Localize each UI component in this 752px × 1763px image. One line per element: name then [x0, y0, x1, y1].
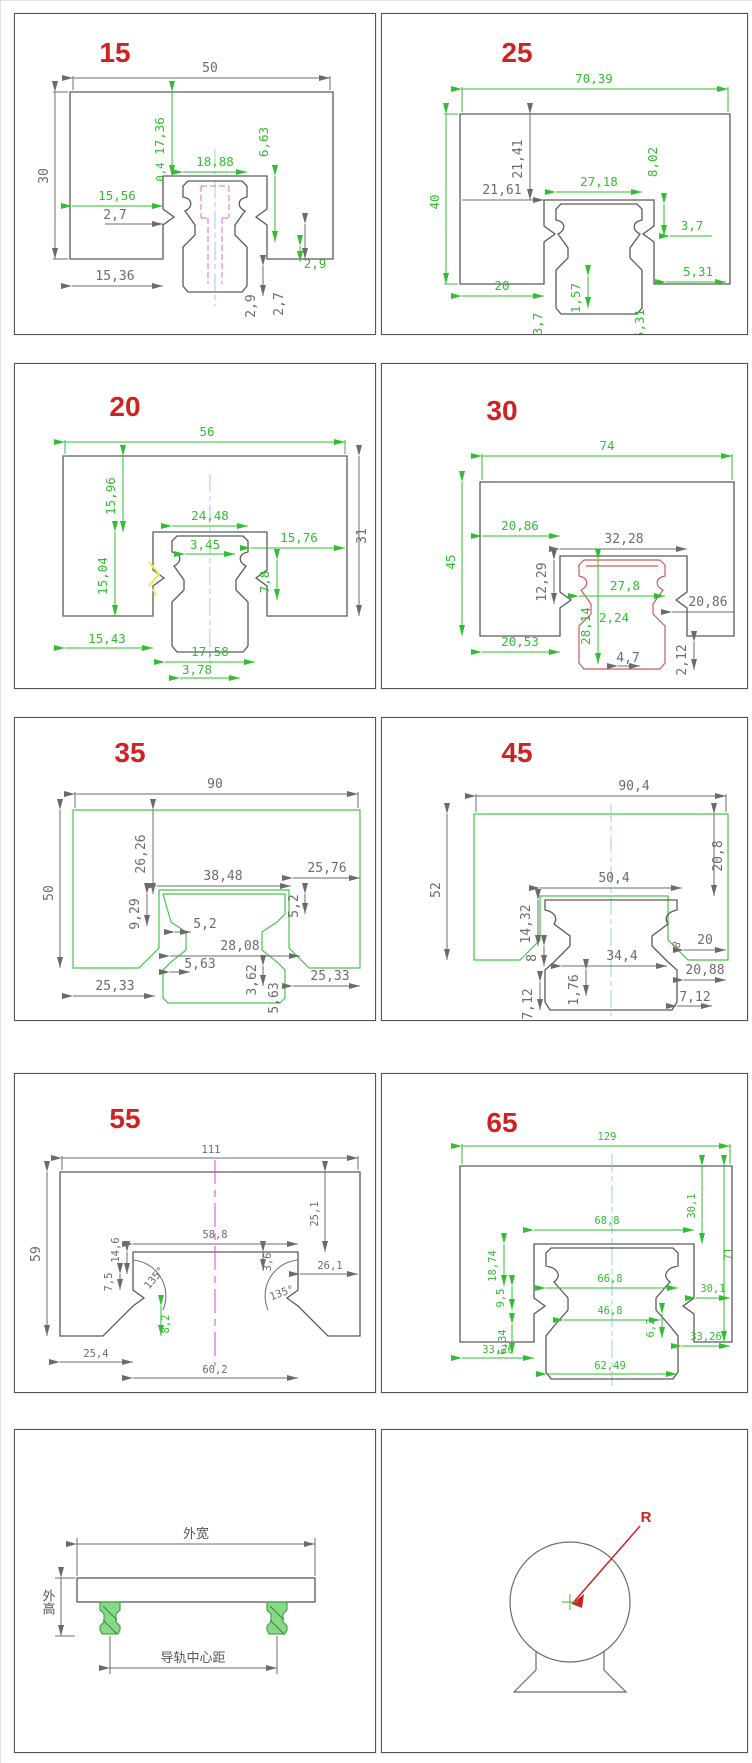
panel-label: 45 [501, 737, 532, 768]
dim-label: 45 [443, 554, 458, 569]
dim-label: 15,96 [103, 477, 118, 515]
dim-label: 28,08 [220, 939, 259, 954]
dim-label: 129 [598, 1131, 617, 1143]
dim-label: 135° [142, 1265, 167, 1292]
dim-label: 12,29 [535, 562, 550, 601]
dim-label: 3,7 [681, 218, 704, 233]
dim-label: 52 [429, 882, 444, 898]
dim-label: 40 [427, 194, 442, 209]
dim-label: 26,26 [134, 834, 149, 873]
dim-label: 17,58 [191, 644, 229, 659]
panel-label: 25 [501, 37, 532, 68]
dim-label: 20 [494, 278, 509, 293]
dim-label: 3,62 [245, 964, 260, 995]
panel-radius: R [381, 1429, 748, 1753]
dim-label: 27,8 [610, 578, 640, 593]
dim-label: 3,45 [190, 537, 220, 552]
dim-label: 20,86 [688, 595, 727, 610]
dim-label: 5,31 [632, 309, 647, 334]
panel-15: 15 50 30 17,36 0,4 18,88 6,63 15,56 2,7 … [14, 13, 376, 335]
dim-label: 5,2 [193, 917, 216, 932]
outer-width-label: 外宽 [183, 1526, 209, 1542]
panel-65: 65 129 30,1 71 68,8 18,74 9,5 66,8 46,8 … [381, 1073, 748, 1393]
dimension-labels: 74 45 20,86 32,28 12,29 27,8 28,14 2,24 … [443, 438, 728, 676]
rail-left [100, 1602, 120, 1634]
dim-label: 4,7 [616, 651, 639, 666]
dimension-lines [447, 794, 726, 1010]
dim-label: 5,31 [683, 264, 713, 279]
dim-label: 25,1 [309, 1201, 321, 1226]
dim-label: 68,8 [594, 1215, 619, 1227]
dim-label: 25,33 [95, 979, 134, 994]
dimension-lines [47, 1156, 358, 1378]
dim-label: 20,88 [685, 963, 724, 978]
dim-label: 25,33 [310, 969, 349, 984]
dim-label: 70,39 [575, 71, 613, 86]
carriage-block-outline [60, 1172, 360, 1336]
dim-label: 6,63 [256, 127, 271, 157]
dim-label: 66,8 [597, 1273, 622, 1285]
dim-label: 50 [42, 885, 57, 901]
dim-label: 2,12 [675, 644, 690, 675]
center-mark [562, 1594, 578, 1610]
dim-label: 50 [202, 61, 218, 76]
dim-label: 8 [525, 954, 540, 962]
dim-label: 60,2 [202, 1364, 227, 1376]
dim-label: 15,43 [88, 631, 126, 646]
dim-label: 25,76 [307, 861, 346, 876]
dim-label: 14,6 [110, 1237, 122, 1262]
dim-label: 30 [37, 168, 52, 184]
rail-end-profile [510, 1542, 630, 1692]
dim-label: 111 [202, 1144, 221, 1156]
dim-label: 18,88 [196, 154, 234, 169]
dim-label: 59 [29, 1246, 44, 1262]
dim-label: 8,02 [645, 147, 660, 177]
dim-label: 20,86 [501, 518, 539, 533]
dim-label: 24,48 [191, 508, 229, 523]
panel-label: 55 [109, 1103, 140, 1134]
dim-label: 26,1 [317, 1260, 342, 1272]
dim-label: 1,76 [567, 974, 582, 1005]
dim-label: 2,24 [599, 610, 629, 625]
carriage-block-outline [474, 814, 728, 960]
dim-label: 17,36 [152, 117, 167, 155]
dim-label: 90 [207, 777, 223, 792]
dim-label: 62,49 [594, 1360, 626, 1372]
highlight-marks [149, 562, 159, 596]
dim-label: 34,4 [606, 949, 637, 964]
panel-25: 25 70,39 40 21,41 21,61 27,18 8,02 3,7 2… [381, 13, 748, 335]
dim-label: 7,12 [679, 990, 710, 1005]
dim-label: 5,2 [287, 894, 302, 917]
dim-label: 8,2 [160, 1315, 172, 1334]
panel-45: 45 90,4 52 20,8 50,4 14,32 8 8 20 34,4 2… [381, 717, 748, 1021]
dim-label: 0,4 [155, 163, 167, 182]
panel-55: 55 111 59 25,1 58,8 14,6 7,5 135° 3,6 13… [14, 1073, 376, 1393]
dimension-lines [53, 76, 330, 296]
dim-label: 38,48 [203, 869, 242, 884]
dim-label: 7,5 [103, 1273, 115, 1292]
rail-center-distance-label: 导轨中心距 [160, 1651, 225, 1666]
dim-label: 21,61 [482, 183, 521, 198]
dim-label: 90,4 [618, 779, 649, 794]
dim-label: 33,26 [482, 1344, 514, 1356]
dim-label: 5,63 [184, 957, 215, 972]
dimension-labels: 50 30 17,36 0,4 18,88 6,63 15,56 2,7 15,… [37, 61, 326, 318]
dim-label: 25,4 [83, 1348, 108, 1360]
dimension-labels: 70,39 40 21,41 21,61 27,18 8,02 3,7 20 1… [427, 71, 713, 334]
dim-label: 6,2 [645, 1319, 657, 1338]
dim-label: 2,7 [272, 292, 287, 315]
dim-label: 9,5 [495, 1289, 507, 1308]
dim-label: 2,7 [103, 208, 126, 223]
panel-label: 65 [486, 1107, 517, 1138]
drawing-sheet: 15 50 30 17,36 0,4 18,88 6,63 15,56 2,7 … [0, 0, 752, 1763]
dim-label: 20,8 [711, 840, 726, 871]
dim-label: 71 [723, 1248, 735, 1261]
panel-label: 35 [114, 737, 145, 768]
dim-label: 33,26 [690, 1331, 722, 1343]
dim-label: 15,36 [95, 269, 134, 284]
dim-label: 2,9 [244, 294, 259, 317]
radius-callout: R [572, 1509, 652, 1608]
dim-label: 2,9 [304, 256, 327, 271]
carriage-block-outline [460, 114, 730, 284]
dim-label: 18,74 [487, 1250, 499, 1282]
panel-30: 30 74 45 20,86 32,28 12,29 27,8 28,14 2,… [381, 363, 748, 689]
carriage-block-outline [73, 810, 360, 968]
dim-label: 135° [268, 1283, 296, 1303]
dim-label: 46,8 [597, 1305, 622, 1317]
dim-label: 30,1 [686, 1193, 698, 1218]
dim-label: 28,14 [578, 607, 593, 645]
dim-label: 15,04 [95, 557, 110, 595]
dim-label: 50,4 [598, 871, 629, 886]
dim-label: 15,76 [280, 530, 318, 545]
dim-label: 32,28 [604, 532, 643, 547]
carriage-plate [77, 1578, 315, 1602]
dim-label: 15,56 [98, 188, 136, 203]
dim-label: 8 [670, 940, 683, 950]
dim-label: 7,8 [257, 571, 272, 594]
panel-label: 30 [486, 395, 517, 426]
dim-label: 74 [599, 438, 614, 453]
dimension-labels: 90 50 26,26 38,48 25,76 9,29 5,2 5,2 28,… [42, 777, 350, 1014]
dimension-labels: 56 31 15,96 24,48 3,45 15,76 15,04 7,8 1… [88, 424, 370, 677]
dim-label: 7,12 [521, 988, 536, 1019]
dim-label: 9,29 [128, 898, 143, 929]
dimension-labels: 外宽 外高 导轨中心距 [40, 1526, 226, 1666]
carriage-block-outline [70, 92, 333, 259]
dim-label: 3,78 [182, 662, 212, 677]
dim-label: 20 [697, 933, 713, 948]
dim-label: 3,7 [530, 313, 545, 334]
dimension-labels: 129 30,1 71 68,8 18,74 9,5 66,8 46,8 30,… [482, 1131, 735, 1372]
dim-label: 14,32 [519, 904, 534, 943]
dim-label: 30,1 [700, 1283, 725, 1295]
dim-label: 56 [199, 424, 214, 439]
panel-assembly: 外宽 外高 导轨中心距 [14, 1429, 376, 1753]
rail-right [267, 1602, 287, 1634]
dim-label: 1,57 [568, 283, 583, 313]
dim-label: 58,8 [202, 1229, 227, 1241]
outer-height-label: 外高 [40, 1589, 56, 1615]
panel-label: 15 [99, 37, 130, 68]
panel-label: 20 [109, 391, 140, 422]
dim-label: 21,41 [511, 139, 526, 178]
carriage-block-outline [460, 1166, 732, 1342]
panel-20: 20 56 31 15,96 24,48 3,45 15,76 15,04 7,… [14, 363, 376, 689]
dim-label: 31 [355, 528, 370, 544]
dim-label: 3,6 [262, 1253, 274, 1272]
dim-label: 27,18 [580, 174, 618, 189]
panel-35: 35 90 50 26,26 38,48 25,76 9,29 5,2 5,2 … [14, 717, 376, 1021]
radius-label: R [641, 1509, 652, 1526]
dim-label: 20,53 [501, 634, 539, 649]
dim-label: 5,63 [267, 982, 282, 1013]
